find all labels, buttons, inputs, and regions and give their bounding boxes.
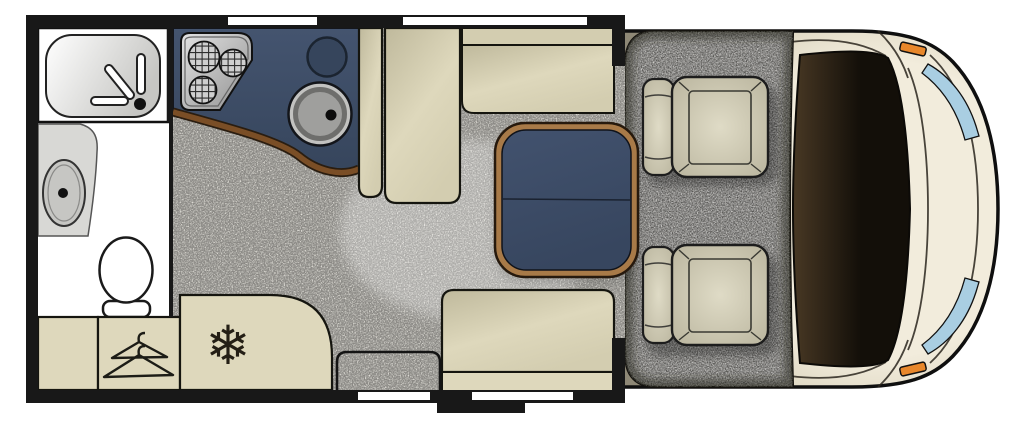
fridge-freezer: ❄ — [180, 295, 332, 390]
cab-section — [620, 26, 998, 396]
freezer-icon: ❄ — [205, 314, 250, 377]
shower-drain — [134, 98, 146, 110]
window-rear-bench — [472, 392, 573, 400]
sink-cover — [308, 38, 347, 77]
window-kitchen — [228, 17, 317, 25]
rear-bench-backrest — [442, 372, 614, 391]
wall-stub-bottom — [612, 338, 625, 390]
side-bench-back — [359, 28, 382, 197]
sofa-backrest — [462, 28, 614, 45]
side-bench-seat — [385, 28, 460, 203]
hob-burner-1 — [189, 42, 220, 73]
basin-drain — [58, 188, 68, 198]
table-fold-seam — [503, 199, 630, 200]
toilet — [100, 238, 153, 318]
entry-door-opening — [358, 392, 430, 400]
shower-cubicle — [38, 28, 168, 122]
wall-washroom — [169, 122, 173, 317]
wall-stub-top — [612, 28, 625, 66]
sofa-seat — [462, 45, 614, 113]
hob-burner-2 — [220, 50, 247, 77]
wall-shower-kitchen — [167, 28, 173, 122]
motorhome-floorplan: ❄ — [0, 0, 1024, 427]
cabinet — [38, 317, 98, 390]
driver-seat — [643, 245, 768, 345]
wall-left — [26, 15, 38, 403]
wardrobe — [98, 317, 180, 390]
sink-drain — [326, 110, 337, 121]
passenger-seat — [643, 77, 768, 177]
windshield — [793, 52, 910, 367]
floorplan-canvas: ❄ — [0, 0, 1024, 427]
kitchen-sink — [289, 83, 352, 146]
washroom — [38, 28, 171, 317]
vanity-unit — [38, 124, 97, 236]
toilet-bowl — [100, 238, 153, 303]
habitation-section: ❄ — [26, 15, 638, 413]
hob-burner-3 — [190, 77, 217, 104]
rear-bench-seat — [442, 290, 614, 372]
pedestal-table — [495, 123, 638, 277]
window-lounge — [403, 17, 587, 25]
